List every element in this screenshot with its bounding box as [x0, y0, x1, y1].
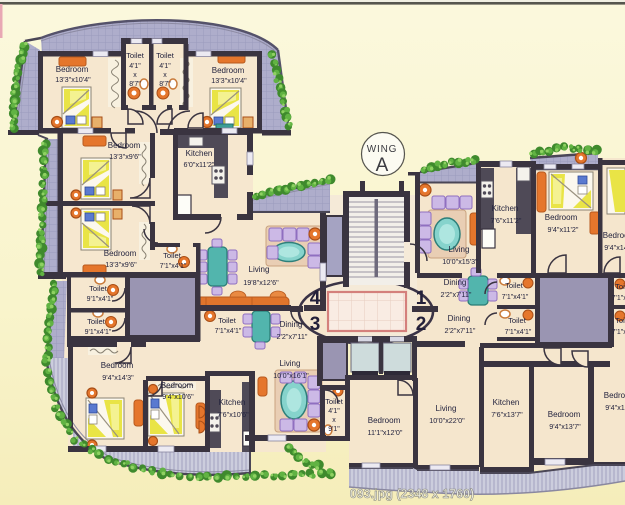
svg-text:Kitchen: Kitchen — [492, 204, 519, 213]
svg-text:Kitchen: Kitchen — [186, 149, 213, 158]
svg-text:7'6"x11'2": 7'6"x11'2" — [491, 216, 522, 225]
svg-text:Dining: Dining — [448, 314, 471, 323]
svg-text:Bedroom: Bedroom — [56, 65, 89, 74]
svg-text:13'3"x9'6": 13'3"x9'6" — [105, 260, 137, 269]
svg-text:9'4"x11'2": 9'4"x11'2" — [548, 225, 579, 234]
svg-text:Toilet: Toilet — [126, 51, 145, 60]
svg-text:Bedroom: Bedroom — [545, 213, 578, 222]
svg-text:x: x — [133, 72, 137, 79]
svg-text:9'4"x10'6": 9'4"x10'6" — [162, 392, 194, 401]
svg-text:9'4"x14'3": 9'4"x14'3" — [102, 373, 134, 382]
svg-text:9'4"x13'7": 9'4"x13'7" — [605, 403, 625, 412]
svg-text:1: 1 — [416, 288, 427, 309]
svg-text:9'1": 9'1" — [328, 426, 340, 433]
svg-text:9'4"x14'3": 9'4"x14'3" — [604, 243, 625, 252]
svg-text:093.jpg (2348 x 1760): 093.jpg (2348 x 1760) — [350, 487, 474, 501]
svg-text:Toilet: Toilet — [218, 316, 237, 325]
svg-text:13'3"x10'4": 13'3"x10'4" — [211, 76, 247, 85]
svg-text:Living: Living — [449, 245, 470, 254]
svg-text:10'0"x16'1": 10'0"x16'1" — [273, 371, 309, 380]
svg-text:6'0"x11'2": 6'0"x11'2" — [184, 160, 215, 169]
svg-text:13'3"x10'4": 13'3"x10'4" — [55, 75, 91, 84]
svg-text:Toilet: Toilet — [505, 281, 524, 290]
svg-text:Toilet: Toilet — [156, 51, 175, 60]
svg-text:x: x — [332, 417, 336, 424]
svg-text:10'0"x22'0": 10'0"x22'0" — [429, 416, 465, 425]
svg-text:7'1"x4'1": 7'1"x4'1" — [612, 329, 625, 336]
svg-text:Living: Living — [249, 265, 270, 274]
svg-text:9'1"x4'1": 9'1"x4'1" — [87, 296, 114, 303]
svg-text:7'1"x4'1": 7'1"x4'1" — [505, 329, 532, 336]
svg-text:Toilet: Toilet — [87, 317, 106, 326]
svg-text:Dining: Dining — [444, 278, 467, 287]
svg-text:Bedroom: Bedroom — [161, 381, 194, 390]
svg-text:10'0"x15'3": 10'0"x15'3" — [442, 257, 478, 266]
svg-text:7'1"x4'1": 7'1"x4'1" — [502, 294, 529, 301]
svg-text:2: 2 — [416, 314, 427, 335]
svg-text:7'1"x4'1": 7'1"x4'1" — [612, 295, 625, 302]
svg-text:Dining: Dining — [280, 320, 303, 329]
svg-text:Bedroom: Bedroom — [548, 410, 581, 419]
svg-text:Living: Living — [436, 404, 457, 413]
svg-text:WING: WING — [367, 144, 397, 155]
svg-text:2'2"x7'11": 2'2"x7'11" — [277, 332, 308, 341]
svg-text:2'2"x7'11": 2'2"x7'11" — [441, 290, 472, 299]
svg-text:3: 3 — [310, 314, 321, 335]
svg-text:Toilet: Toilet — [163, 251, 182, 260]
svg-text:Bedroom: Bedroom — [604, 391, 625, 400]
svg-text:Toilet: Toilet — [615, 316, 625, 325]
svg-text:Toilet: Toilet — [508, 316, 527, 325]
svg-text:Kitchen: Kitchen — [493, 398, 520, 407]
svg-text:Bedroom: Bedroom — [368, 416, 401, 425]
svg-text:Bedroom: Bedroom — [603, 231, 625, 240]
svg-text:2'2"x7'11": 2'2"x7'11" — [445, 326, 476, 335]
svg-text:9'1"x4'1": 9'1"x4'1" — [85, 329, 112, 336]
svg-text:Bedroom: Bedroom — [212, 66, 245, 75]
svg-text:11'1"x12'0": 11'1"x12'0" — [368, 428, 403, 437]
svg-text:Bedroom: Bedroom — [101, 361, 134, 370]
svg-text:9'4"x13'7": 9'4"x13'7" — [549, 422, 581, 431]
svg-text:7'1"x4'1": 7'1"x4'1" — [160, 263, 187, 270]
svg-text:A: A — [376, 155, 389, 176]
svg-text:4: 4 — [310, 288, 321, 309]
svg-text:Bedroom: Bedroom — [108, 141, 141, 150]
svg-text:Toilet: Toilet — [325, 397, 344, 406]
svg-text:4'1": 4'1" — [328, 408, 340, 415]
svg-text:Kitchen: Kitchen — [219, 398, 246, 407]
svg-text:13'3"x9'6": 13'3"x9'6" — [109, 152, 141, 161]
svg-text:Toilet: Toilet — [615, 282, 625, 291]
svg-text:4'1": 4'1" — [129, 63, 141, 70]
svg-text:4'1": 4'1" — [159, 63, 171, 70]
svg-text:19'8"x12'6": 19'8"x12'6" — [243, 278, 279, 287]
svg-text:7'6"x10'6": 7'6"x10'6" — [217, 410, 249, 419]
svg-text:x: x — [163, 72, 167, 79]
svg-text:Toilet: Toilet — [89, 284, 108, 293]
svg-text:Bedroom: Bedroom — [104, 249, 137, 258]
svg-text:Living: Living — [280, 359, 301, 368]
svg-text:7'6"x13'7": 7'6"x13'7" — [491, 410, 523, 419]
svg-text:8'7": 8'7" — [159, 81, 171, 88]
svg-text:8'7": 8'7" — [129, 81, 141, 88]
svg-text:7'1"x4'1": 7'1"x4'1" — [215, 328, 242, 335]
